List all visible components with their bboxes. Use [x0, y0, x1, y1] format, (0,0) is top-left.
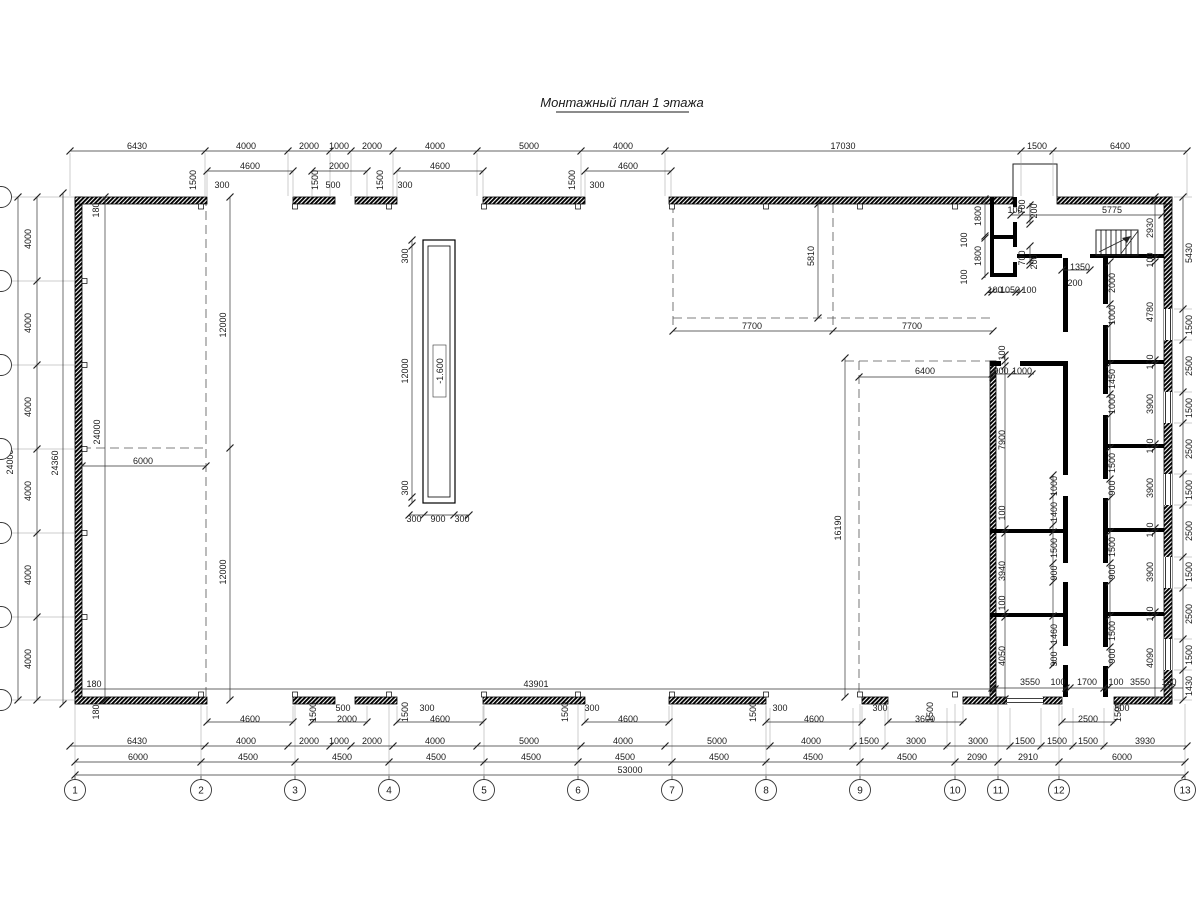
dim-label: 300	[589, 180, 604, 190]
dim-label: 1500	[1107, 537, 1117, 557]
floor-plan-canvas: Монтажный план 1 этажа	[0, 0, 1200, 900]
dim-label: 300	[872, 703, 887, 713]
dim-label: 2000	[337, 714, 357, 724]
dim-label: 4000	[613, 141, 633, 151]
dim-label: 1430	[1184, 676, 1194, 696]
grid-bubble-number: 13	[1179, 786, 1191, 797]
dim-label: 16190	[833, 515, 843, 540]
dim-label: 2000	[329, 161, 349, 171]
left-grid-bubble	[0, 523, 12, 544]
left-grid-bubble	[0, 355, 12, 376]
dim-label: 1800	[973, 246, 983, 266]
dim-label: 1500	[1107, 453, 1117, 473]
dim-label: 100	[1145, 354, 1155, 369]
dim-label: 900	[1107, 564, 1117, 579]
dim-label: 2500	[1184, 356, 1194, 376]
dim-label: 1400	[1049, 502, 1059, 522]
dim-label: 3940	[997, 561, 1007, 581]
dim-label: 300	[584, 703, 599, 713]
dim-label: 100	[1050, 677, 1065, 687]
dim-label: 100	[1145, 438, 1155, 453]
dim-label: 900	[993, 366, 1008, 376]
left-grid-bubble	[0, 607, 12, 628]
grid-bubble-number: 1	[72, 786, 78, 797]
dim-label: 3000	[906, 736, 926, 746]
grid-bubble-number: 5	[481, 786, 487, 797]
dim-label: 3550	[1130, 677, 1150, 687]
dim-label: 4000	[801, 736, 821, 746]
dim-label: 4600	[240, 714, 260, 724]
dim-label: 4500	[615, 752, 635, 762]
dim-label: 300	[397, 180, 412, 190]
dim-label: 100	[1145, 252, 1155, 267]
grid-bubble-number: 10	[949, 786, 961, 797]
dim-label: 4000	[425, 736, 445, 746]
dim-label: 6000	[1112, 752, 1132, 762]
dim-label: 5430	[1184, 243, 1194, 263]
dim-label: 4600	[618, 714, 638, 724]
dim-label: 300	[419, 703, 434, 713]
dim-label: 24360	[50, 450, 60, 475]
dim-label: 2930	[1145, 218, 1155, 238]
dim-label: 100	[997, 345, 1007, 360]
dim-label: 4600	[430, 161, 450, 171]
dim-label: 300	[400, 248, 410, 263]
dim-label: 1500	[1107, 621, 1117, 641]
dim-label: 100	[959, 269, 969, 284]
dim-label: 900	[1107, 480, 1117, 495]
dim-label: 1500	[375, 170, 385, 190]
entrance-canopy	[1013, 164, 1057, 197]
left-grid-bubble	[0, 690, 12, 711]
dim-label: 180	[91, 704, 101, 719]
dim-label: 1500	[1184, 398, 1194, 418]
dim-label: 3900	[1145, 478, 1155, 498]
dim-label: 4000	[23, 313, 33, 333]
dim-label: 6430	[127, 736, 147, 746]
dim-label: 4500	[709, 752, 729, 762]
dim-label: 200	[1029, 203, 1039, 218]
dim-label: 5000	[519, 141, 539, 151]
stairs-icon	[1096, 230, 1138, 255]
dim-label: 3550	[1020, 677, 1040, 687]
dim-label: 1500	[1078, 736, 1098, 746]
dim-label: 3900	[1145, 562, 1155, 582]
grid-bubbles: 12345678910111213	[65, 776, 1196, 801]
dim-label: 900	[1107, 648, 1117, 663]
dim-label: 3930	[1135, 736, 1155, 746]
dim-label: 300	[400, 480, 410, 495]
wall-right	[1164, 197, 1172, 704]
dim-label: 1450	[1107, 369, 1117, 389]
drawing-title: Монтажный план 1 этажа	[540, 95, 703, 110]
dim-label: 300	[454, 514, 469, 524]
dim-label: 1000	[1049, 476, 1059, 496]
dim-label: 5000	[707, 736, 727, 746]
dim-label: 7700	[902, 321, 922, 331]
dim-label: 4600	[240, 161, 260, 171]
dim-label: 4600	[618, 161, 638, 171]
dim-label: 1500	[748, 702, 758, 722]
grid-bubble-number: 8	[763, 786, 769, 797]
grid-bubble-number: 6	[575, 786, 581, 797]
dim-label: 12000	[218, 312, 228, 337]
dim-label: 100	[1145, 606, 1155, 621]
dim-label: 1500	[567, 170, 577, 190]
left-grid-bubbles	[0, 187, 12, 711]
dim-label: 4000	[425, 141, 445, 151]
dim-label: 1500	[188, 170, 198, 190]
dim-label: 3900	[1145, 394, 1155, 414]
dim-label: 500	[335, 703, 350, 713]
dim-label: 1500	[1184, 562, 1194, 582]
dim-label: 4500	[897, 752, 917, 762]
dim-label: 1000	[1107, 305, 1117, 325]
dim-label: 1500	[1015, 736, 1035, 746]
dim-label: 4500	[521, 752, 541, 762]
dim-label: 100	[1145, 522, 1155, 537]
left-grid-bubble	[0, 271, 12, 292]
dim-label: 4090	[1145, 648, 1155, 668]
dim-label: 4000	[613, 736, 633, 746]
dim-label: 4600	[430, 714, 450, 724]
dim-label: 100	[1021, 285, 1036, 295]
dim-label: 1500	[308, 702, 318, 722]
dim-label: 4500	[803, 752, 823, 762]
dim-label: 2500	[1078, 714, 1098, 724]
dim-label: 4000	[236, 736, 256, 746]
dim-label: 4500	[426, 752, 446, 762]
dim-label: 2910	[1018, 752, 1038, 762]
dim-label: 1000	[329, 736, 349, 746]
dim-label: 1500	[560, 702, 570, 722]
dim-label: 180	[1161, 677, 1176, 687]
dim-label: 1350	[1070, 262, 1090, 272]
dim-label: 100	[997, 595, 1007, 610]
dim-label: 300	[772, 703, 787, 713]
dim-label: 200	[1029, 254, 1039, 269]
dim-label: 4050	[997, 646, 1007, 666]
grid-bubble-number: 4	[386, 786, 392, 797]
dim-label: 4000	[23, 565, 33, 585]
dim-label: 1460	[1049, 624, 1059, 644]
dim-label: 3000	[968, 736, 988, 746]
grid-bubble-number: 11	[993, 786, 1004, 797]
dim-label: 1050	[1000, 285, 1020, 295]
dim-label: 300	[406, 514, 421, 524]
left-grid-bubble	[0, 187, 12, 208]
dim-label: 2000	[362, 736, 382, 746]
dim-label: 1000	[329, 141, 349, 151]
dim-label: 17030	[830, 141, 855, 151]
dim-label: 6400	[1110, 141, 1130, 151]
dim-label: 12000	[218, 559, 228, 584]
pit-level-label: -1.600	[435, 358, 445, 384]
grid-bubble-number: 2	[198, 786, 204, 797]
dim-label: 1500	[1184, 315, 1194, 335]
walls	[75, 197, 1172, 704]
dim-label: 100	[1108, 677, 1123, 687]
grid-bubble-number: 7	[669, 786, 675, 797]
dim-label: 2000	[1107, 273, 1117, 293]
dim-label: 100	[959, 232, 969, 247]
dim-label: 4000	[23, 229, 33, 249]
dim-label: 2000	[362, 141, 382, 151]
dim-label: 12000	[400, 358, 410, 383]
dim-label: 2500	[1184, 521, 1194, 541]
dim-label: 53000	[617, 765, 642, 775]
dim-label: 2500	[1184, 439, 1194, 459]
dim-label: 6400	[915, 366, 935, 376]
grid-bubble-number: 12	[1053, 786, 1065, 797]
dim-label: 6000	[128, 752, 148, 762]
dim-label: 500	[1114, 703, 1129, 713]
dim-label: 4780	[1145, 302, 1155, 322]
column-markers	[82, 204, 958, 697]
grid-bubble-number: 3	[292, 786, 298, 797]
dim-label: 3600	[915, 714, 935, 724]
dim-label: 2000	[299, 141, 319, 151]
dim-label: 2090	[967, 752, 987, 762]
dim-label: 5810	[806, 246, 816, 266]
dim-label: 6430	[127, 141, 147, 151]
dim-label: 1000	[1107, 394, 1117, 414]
dim-label: 100	[997, 505, 1007, 520]
dim-label: 6000	[133, 456, 153, 466]
dim-label: 4000	[236, 141, 256, 151]
dim-label: 4000	[23, 481, 33, 501]
dim-label: 1500	[1184, 645, 1194, 665]
dim-label: 2500	[1184, 604, 1194, 624]
drawing-sheet: Монтажный план 1 этажа	[0, 0, 1200, 900]
dim-label: 4000	[23, 649, 33, 669]
dim-label: 1500	[310, 170, 320, 190]
dim-label: 4000	[23, 397, 33, 417]
dim-label: 500	[325, 180, 340, 190]
dim-label: 1700	[1077, 677, 1097, 687]
dim-label: 43901	[523, 679, 548, 689]
dim-label: 4500	[238, 752, 258, 762]
dim-label: 300	[214, 180, 229, 190]
dim-label: 100	[1007, 205, 1022, 215]
dim-label: 180	[91, 202, 101, 217]
dim-label: 900	[430, 514, 445, 524]
dim-label: 1500	[1047, 736, 1067, 746]
dim-label: 24000	[92, 419, 102, 444]
dim-label: 1500	[1184, 480, 1194, 500]
dim-label: 4600	[804, 714, 824, 724]
dashed-axes	[82, 197, 993, 700]
dim-label: 1500	[859, 736, 879, 746]
dim-label: 900	[1049, 565, 1059, 580]
grid-bubble-number: 9	[857, 786, 863, 797]
wall-left	[75, 197, 82, 704]
dim-label: 7700	[742, 321, 762, 331]
dim-label: 5775	[1102, 205, 1122, 215]
dim-label: 1500	[1027, 141, 1047, 151]
dim-label: 1500	[400, 702, 410, 722]
dim-label: 4500	[332, 752, 352, 762]
dim-label: 700	[1017, 250, 1027, 265]
dim-label: 1800	[973, 206, 983, 226]
dim-label: 1000	[1012, 366, 1032, 376]
dim-label: 2000	[299, 736, 319, 746]
dim-label: 200	[1067, 278, 1082, 288]
dim-label: 180	[86, 679, 101, 689]
dim-label: 7900	[997, 430, 1007, 450]
dim-label: 1500	[1049, 538, 1059, 558]
dim-label: 900	[1049, 651, 1059, 666]
dim-label: 5000	[519, 736, 539, 746]
